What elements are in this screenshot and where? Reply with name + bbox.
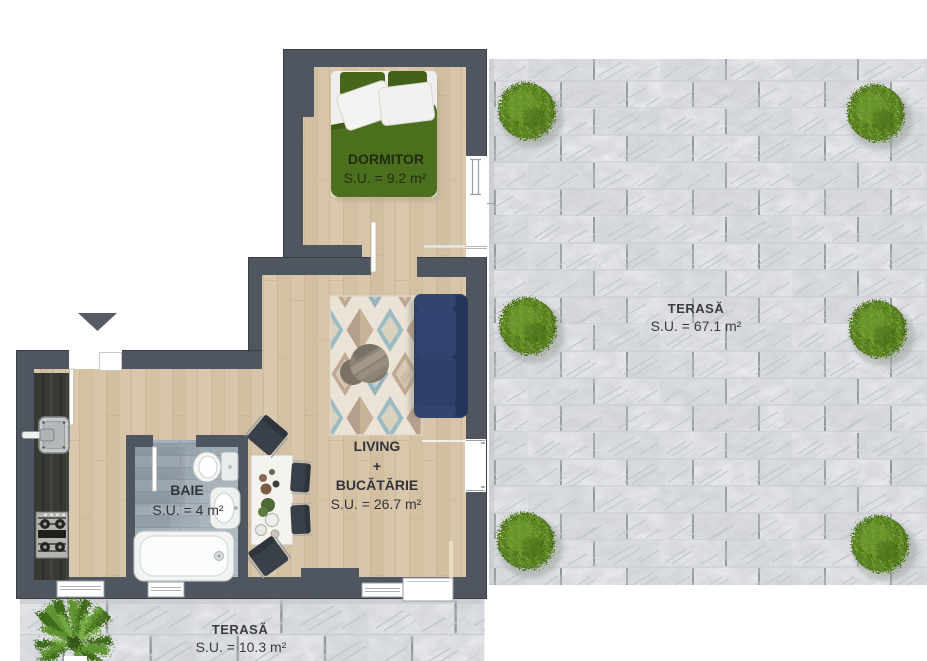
svg-text:S.U. = 26.7 m²: S.U. = 26.7 m² [331,496,422,512]
svg-text:+: + [373,458,381,474]
svg-text:LIVING: LIVING [354,438,401,454]
svg-text:S.U. = 4 m²: S.U. = 4 m² [152,502,224,518]
svg-text:S.U. = 9.2 m²: S.U. = 9.2 m² [344,170,427,186]
svg-text:TERASĂ: TERASĂ [212,622,269,637]
svg-text:S.U. = 67.1 m²: S.U. = 67.1 m² [651,318,742,334]
svg-text:BUCĂTĂRIE: BUCĂTĂRIE [336,477,418,493]
svg-text:TERASĂ: TERASĂ [668,301,725,316]
svg-text:DORMITOR: DORMITOR [348,151,424,167]
svg-text:BAIE: BAIE [170,482,203,498]
svg-text:S.U. = 10.3 m²: S.U. = 10.3 m² [196,639,287,655]
